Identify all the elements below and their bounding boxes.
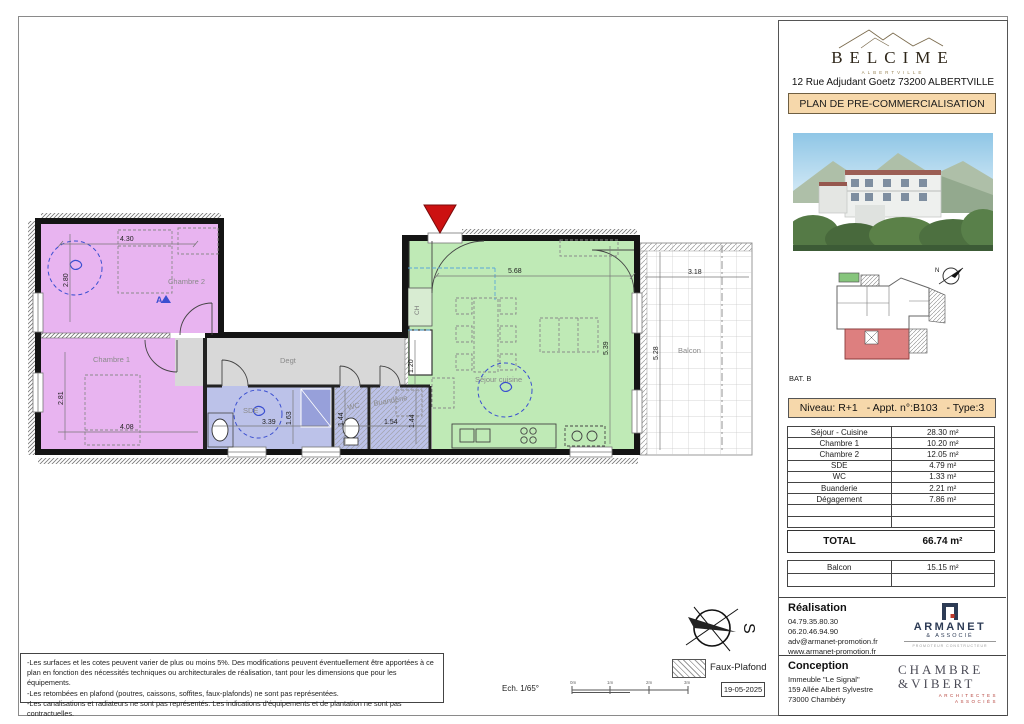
site-key-plan: N: [817, 261, 969, 383]
mountain-logo-icon: [831, 24, 951, 50]
realisation-block: Réalisation 04.79.35.80.30 06.20.46.94.9…: [779, 597, 1006, 656]
compass-rose: S: [680, 595, 758, 663]
entry-marker: [424, 205, 456, 233]
date-stamp: 19-05-2025: [721, 682, 765, 697]
svg-text:N: N: [935, 268, 939, 274]
note-line-2: -Les retombées en plafond (poutres, cais…: [27, 689, 437, 699]
room-label-balcon: Balcon: [678, 346, 701, 355]
svg-text:2.80: 2.80: [63, 273, 70, 287]
conception-title: Conception: [788, 660, 873, 672]
brand-subtitle: ALBERTVILLE: [779, 70, 1007, 75]
svg-text:2.81: 2.81: [58, 391, 65, 405]
room-label-sejour: Séjour cuisine: [475, 375, 522, 384]
svg-text:5.68: 5.68: [508, 268, 522, 275]
svg-text:4.08: 4.08: [120, 424, 134, 431]
table-row: WC1.33 m²: [788, 471, 995, 482]
conception-block: Conception Immeuble "Le Signal" 159 Allé…: [779, 655, 1006, 716]
svg-text:1.54: 1.54: [384, 419, 398, 426]
unit-niveau: Niveau: R+1: [800, 402, 858, 414]
svg-text:1.44: 1.44: [338, 412, 345, 426]
room-label-degt: Degt: [280, 356, 297, 365]
svg-text:3m: 3m: [684, 680, 691, 685]
disclaimer-notes: -Les surfaces et les cotes peuvent varie…: [20, 653, 444, 703]
architect-line-3: 73000 Chambéry: [788, 695, 873, 705]
chambre-vibert-logo: CHAMBRE &VIBERT ARCHITECTES ASSOCIÉS: [898, 662, 998, 704]
svg-text:2m: 2m: [646, 680, 653, 685]
total-value: 66.74 m²: [891, 531, 994, 552]
architect-line-2: 159 Allée Albert Sylvestre: [788, 685, 873, 695]
faux-plafond-label: Faux-Plafond: [710, 662, 767, 673]
brand-name: BELCIME: [779, 48, 1007, 68]
title-block-panel: BELCIME ALBERTVILLE 12 Rue Adjudant Goet…: [778, 20, 1008, 716]
phone-2: 06.20.46.94.90: [788, 627, 878, 637]
balcon-table: Balcon15.15 m²: [787, 560, 995, 587]
note-line-3: -Les canalisations et radiateurs ne sont…: [27, 699, 437, 719]
svg-text:3.18: 3.18: [688, 269, 702, 276]
svg-text:3.39: 3.39: [262, 419, 276, 426]
project-address: 12 Rue Adjudant Goetz 73200 ALBERTVILLE: [779, 77, 1007, 88]
svg-text:0m: 0m: [570, 680, 577, 685]
scale-bar: 0m 1m 2m 3m: [570, 678, 692, 696]
room-label-chambre2: Chambre 2: [168, 277, 205, 286]
svg-text:5.39: 5.39: [603, 341, 610, 355]
email: adv@armanet-promotion.fr: [788, 637, 878, 647]
total-label: TOTAL: [788, 531, 891, 552]
unit-banner: Niveau: R+1 - Appt. n°:B103 - Type:3: [788, 398, 996, 418]
faux-plafond-swatch: [672, 659, 706, 678]
room-label-sde: SDE: [243, 406, 258, 415]
svg-text:1m: 1m: [607, 680, 614, 685]
armanet-logo: ARMANET & ASSOCIÉ PROMOTEUR CONSTRUCTEUR: [904, 601, 996, 648]
realisation-title: Réalisation: [788, 602, 878, 614]
phone-1: 04.79.35.80.30: [788, 617, 878, 627]
svg-text:5.28: 5.28: [653, 346, 660, 360]
room-label-ch: CH: [414, 305, 421, 315]
svg-text:1.63: 1.63: [286, 411, 293, 425]
table-row: [788, 516, 995, 527]
svg-text:1.44: 1.44: [409, 414, 416, 428]
table-row: [788, 505, 995, 516]
armanet-arch-icon: [939, 601, 961, 621]
table-row: Dégagement7.86 m²: [788, 494, 995, 505]
table-row: Chambre 110.20 m²: [788, 438, 995, 449]
building-photo: [793, 133, 993, 251]
table-row: SDE4.79 m²: [788, 460, 995, 471]
svg-text:1.20: 1.20: [408, 359, 415, 373]
table-row: [788, 574, 995, 587]
architect-line-1: Immeuble "Le Signal": [788, 675, 873, 685]
plan-type-banner: PLAN DE PRE-COMMERCIALISATION: [788, 93, 996, 114]
scale-label: Ech. 1/65°: [502, 684, 539, 693]
areas-table: Séjour - Cuisine28.30 m² Chambre 110.20 …: [787, 426, 995, 528]
table-row: Séjour - Cuisine28.30 m²: [788, 427, 995, 438]
table-row: Chambre 212.05 m²: [788, 449, 995, 460]
table-row: Balcon15.15 m²: [788, 561, 995, 574]
table-row: Buanderie2.21 m²: [788, 482, 995, 493]
total-row: TOTAL 66.74 m²: [787, 530, 995, 553]
svg-text:A: A: [156, 295, 163, 305]
note-line-1: -Les surfaces et les cotes peuvent varie…: [27, 658, 437, 689]
unit-type: - Type:3: [947, 402, 985, 414]
room-label-chambre1: Chambre 1: [93, 355, 130, 364]
compass-s-label: S: [740, 623, 757, 634]
unit-appt: - Appt. n°:B103: [867, 402, 938, 414]
plan-sheet: Balcon CH: [0, 0, 1024, 724]
svg-text:4.30: 4.30: [120, 236, 134, 243]
floor-plan: Balcon CH: [20, 200, 780, 480]
site-compass: N: [935, 268, 963, 284]
bat-label: BAT. B: [789, 374, 811, 383]
